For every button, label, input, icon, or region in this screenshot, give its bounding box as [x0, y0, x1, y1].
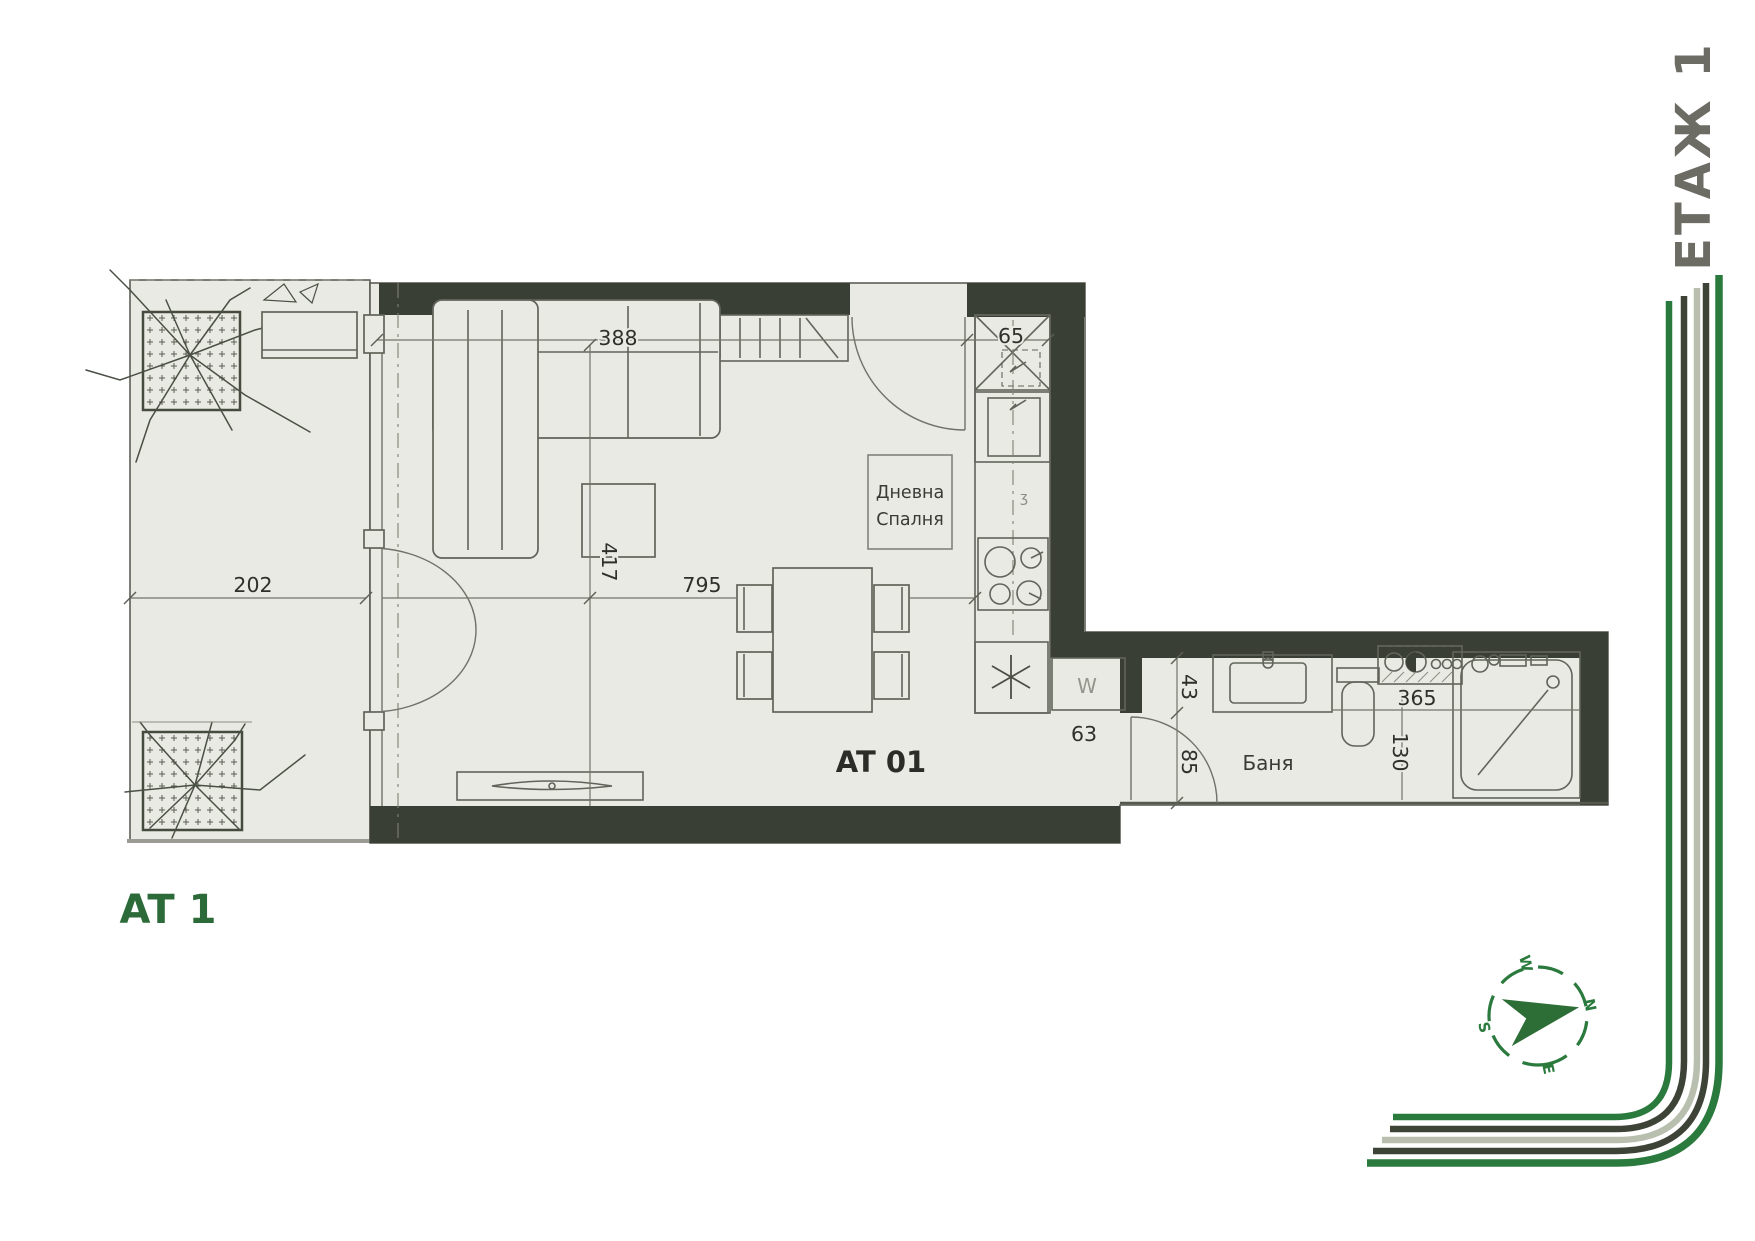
apartment-label: AT 01: [836, 745, 926, 779]
room-label-living: Дневна Спалня: [868, 455, 952, 549]
dim-85: 85: [1177, 749, 1201, 775]
terrace-bench: [262, 312, 357, 358]
kitchen-mark: ʒ: [1020, 490, 1028, 506]
dim-202: 202: [233, 573, 272, 597]
dim-365: 365: [1397, 686, 1436, 710]
terrace: [86, 270, 370, 841]
compass-west: W: [1515, 953, 1536, 973]
floor-plan-drawing: 388 65 202 795 417 63 43 85 365 130 Днев…: [0, 0, 1755, 1241]
compass-north: N: [1580, 997, 1600, 1013]
planter-bottom: [143, 732, 242, 830]
svg-text:Спалня: Спалня: [876, 510, 944, 530]
plan-title: AT 1: [120, 887, 217, 933]
dim-63: 63: [1071, 722, 1097, 746]
compass: N E S W: [1462, 942, 1610, 1087]
dining-table: [773, 568, 872, 712]
dim-43: 43: [1177, 674, 1201, 700]
dim-417: 417: [597, 542, 621, 581]
svg-text:Дневна: Дневна: [876, 483, 944, 503]
room-label-bath: Баня: [1242, 751, 1293, 775]
washer-label: W: [1077, 674, 1097, 698]
planter-top: [143, 312, 240, 410]
compass-south: S: [1474, 1020, 1494, 1034]
floor-plan-page: 388 65 202 795 417 63 43 85 365 130 Днев…: [0, 0, 1755, 1241]
dim-388: 388: [598, 326, 637, 350]
dim-795: 795: [682, 573, 721, 597]
compass-arrow-icon: [1502, 984, 1584, 1046]
floor-title: ЕТАЖ 1: [1666, 41, 1722, 271]
dim-65: 65: [998, 324, 1024, 348]
dim-130: 130: [1388, 732, 1412, 771]
